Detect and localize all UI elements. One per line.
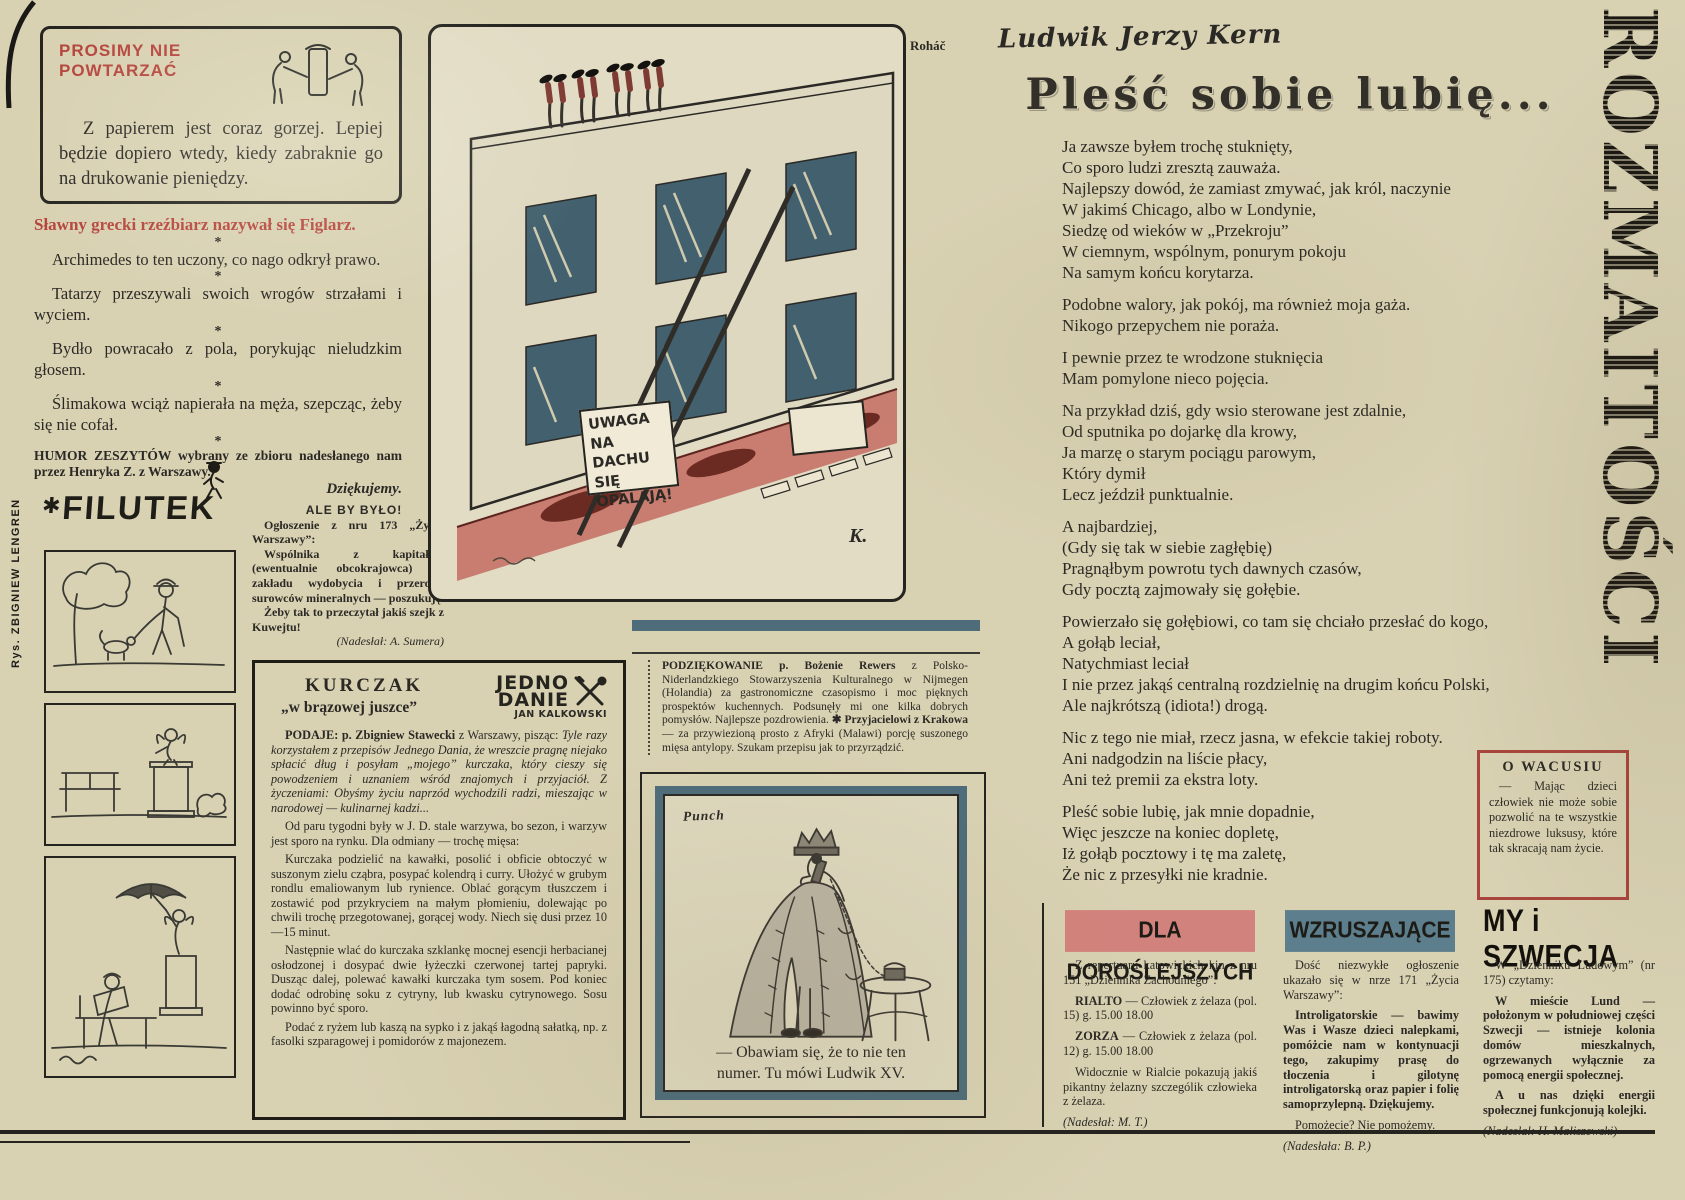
recipe-paragraph: Następnie wlać do kurczaka szklankę mocn… (271, 943, 607, 1016)
ale-by-bylo-section: ALE BY BYŁO! Ogłoszenie z nru 173 „Życia… (252, 503, 444, 649)
no-repeat-title: PROSIMY NIE POWTARZAĆ (59, 41, 181, 107)
paper-roll-figures-icon (251, 41, 383, 107)
separator-asterisk: * (34, 325, 402, 338)
poem-author: Ludwik Jerzy Kern (998, 20, 1283, 55)
separator-asterisk: * (34, 236, 402, 249)
roof-cartoon-artist: Roháč (910, 38, 945, 54)
adult-credit: (Nadesłał: M. T.) (1063, 1115, 1257, 1130)
humor-item: Bydło powracało z pola, porykując nielud… (34, 338, 402, 380)
recipe-lead-bold: PODAJE: p. Zbigniew Stawecki (285, 728, 455, 742)
recipe-subtitle: „w brązowej juszce” (281, 699, 423, 717)
ale-title: ALE BY BYŁO! (252, 503, 444, 518)
thanks-note: PODZIĘKOWANIE p. Bożenie Rewers z Polsko… (648, 660, 968, 755)
wacusiu-title: O WACUSIU (1489, 759, 1617, 776)
thanks-note-bold2: ✱ Przyjacielowi z Krakowa (832, 714, 968, 726)
humor-lead: Sławny grecki rzeźbiarz nazywał się Figl… (34, 214, 402, 236)
filutek-star: ✱ (41, 493, 63, 518)
no-repeat-body: Z papierem jest coraz gorzej. Lepiej będ… (59, 117, 383, 192)
filutek-panel-3 (44, 856, 236, 1078)
separator-asterisk: * (34, 380, 402, 393)
artist-credit-vertical: Rys. ZBIGNIEW LENGREN (10, 468, 22, 668)
recipe-paragraph: Od paru tygodni były w J. D. stale warzy… (271, 819, 607, 848)
moving-intro: Dość niezwykłe ogłoszenie ukazało się w … (1283, 958, 1459, 1002)
moving-credit: (Nadesłała: B. P.) (1283, 1139, 1459, 1154)
wacusiu-body: — Mając dzieci człowiek nie może sobie p… (1489, 779, 1617, 857)
poem-stanza: I pewnie przez te wrodzone stuknięcia Ma… (1062, 347, 1607, 389)
sunbathers-roof-cartoon (431, 27, 902, 598)
roof-warning-sign: UWAGA NA DACHU SIĘ OPALAJĄ! (579, 400, 679, 495)
cinema-name: RIALTO (1075, 994, 1122, 1008)
adult-section-label: DLA DOROŚLEJSZYCH (1065, 910, 1255, 952)
ale-intro: Ogłoszenie z nru 173 „Życia Warszawy”: (252, 518, 444, 547)
thin-rule (632, 652, 980, 654)
thanks-note-text2: — za przywiezioną prosto z Afryki (Malaw… (662, 728, 968, 754)
punch-cartoon-box: Punch (655, 786, 967, 1100)
humor-item: Archimedes to ten uczony, co nago odkrył… (34, 249, 402, 270)
bottom-rule-secondary (0, 1141, 690, 1143)
blank-sign (789, 401, 867, 454)
ale-ad: Wspólnika z kapitałem (ewentualnie obcok… (252, 547, 444, 605)
poem-stanza: Na przykład dziś, gdy wsio sterowane jes… (1062, 400, 1607, 505)
moving-ad: Introligatorskie — bawimy Was i Wasze dz… (1283, 1008, 1459, 1112)
adult-comment: Widocznie w Rialcie pokazują jakiś pikan… (1063, 1065, 1257, 1109)
humor-item: Ślimakowa wciąż napierała na męża, szepc… (34, 393, 402, 435)
poem-stanza: Podobne walory, jak pokój, ma również mo… (1062, 294, 1607, 336)
ale-credit: (Nadesłał: A. Sumera) (252, 634, 444, 649)
recipe-lead-mid: z Warszawy, pisząc: (455, 728, 562, 742)
cinema-name: ZORZA (1075, 1029, 1119, 1043)
poem-title: Pleść sobie lubię... (1020, 70, 1560, 120)
louis-xv-telephone-drawing (673, 820, 949, 1044)
poem-stanza: Ja zawsze byłem trochę stuknięty, Co spo… (1062, 136, 1607, 283)
poem-stanza: Powierzało się gołębiowi, co tam się chc… (1062, 611, 1607, 716)
filutek-logo: ✱FILUTEK (41, 489, 217, 527)
sweden-punchline: A u nas dzięki energii społecznej funkcj… (1483, 1088, 1655, 1118)
wacusiu-box: O WACUSIU — Mając dzieci człowiek nie mo… (1477, 750, 1629, 900)
cartoonist-signature: K. (849, 525, 867, 548)
punch-cartoon-outer-frame: Punch (640, 772, 986, 1118)
vertical-rule (1042, 903, 1044, 1127)
thanks-note-bold: PODZIĘKOWANIE p. Bożenie Rewers (662, 660, 895, 672)
filutek-panel-1 (44, 550, 236, 693)
sweden-quote: W mieście Lund — położonym w południowej… (1483, 994, 1655, 1083)
filutek-panel-3-drawing (46, 858, 232, 1075)
no-repeat-box: PROSIMY NIE POWTARZAĆ Z papierem jest co… (40, 26, 402, 204)
newspaper-page: Rys. ZBIGNIEW LENGREN ROZMAITOŚCI PROSIM… (0, 0, 1685, 1200)
recipe-paragraph: Podać z ryżem lub kaszą na sypko i z jak… (271, 1020, 607, 1049)
moving-section-label: WZRUSZAJĄCE (1285, 910, 1455, 952)
sweden-intro: W „Dzienniku Ludowym” (nr 175) czytamy: (1483, 958, 1655, 988)
filutek-panel-1-drawing (46, 552, 232, 690)
recipe-box: KURCZAK „w brązowej juszce” JEDNO DANIE (252, 660, 626, 1120)
adult-section-body: Z repertuaru katowickich kin z nru 151 „… (1063, 958, 1257, 1136)
separator-asterisk: * (34, 435, 402, 448)
recipe-title: KURCZAK (305, 675, 423, 697)
humor-column: Sławny grecki rzeźbiarz nazywał się Figl… (34, 214, 402, 498)
sweden-section-body: W „Dzienniku Ludowym” (nr 175) czytamy: … (1483, 958, 1655, 1145)
jedno-danie-logo-bottom: DANIE (496, 692, 569, 709)
filutek-name: FILUTEK (61, 489, 217, 526)
adult-intro: Z repertuaru katowickich kin z nru 151 „… (1063, 958, 1257, 988)
crossed-utensils-icon (573, 676, 607, 708)
humor-item: Tatarzy przeszywali swoich wrogów strzał… (34, 283, 402, 325)
filutek-panel-2-drawing (46, 705, 232, 843)
decorative-slate-bar (632, 620, 980, 631)
roof-cartoon-frame: UWAGA NA DACHU SIĘ OPALAJĄ! K. (428, 24, 906, 602)
poem-stanza: A najbardziej, (Gdy się tak w siebie zag… (1062, 516, 1607, 600)
bottom-rule (0, 1130, 1655, 1134)
recipe-paragraph: Kurczaka podzielić na kawałki, posolić i… (271, 852, 607, 939)
separator-asterisk: * (34, 270, 402, 283)
filutek-panel-2 (44, 703, 236, 846)
punch-caption: — Obawiam się, że to nie ten numer. Tu m… (663, 1042, 959, 1084)
ale-comment: Żeby tak to przeczytał jakiś szejk z Kuw… (252, 605, 444, 634)
filutek-character-icon (196, 458, 232, 500)
